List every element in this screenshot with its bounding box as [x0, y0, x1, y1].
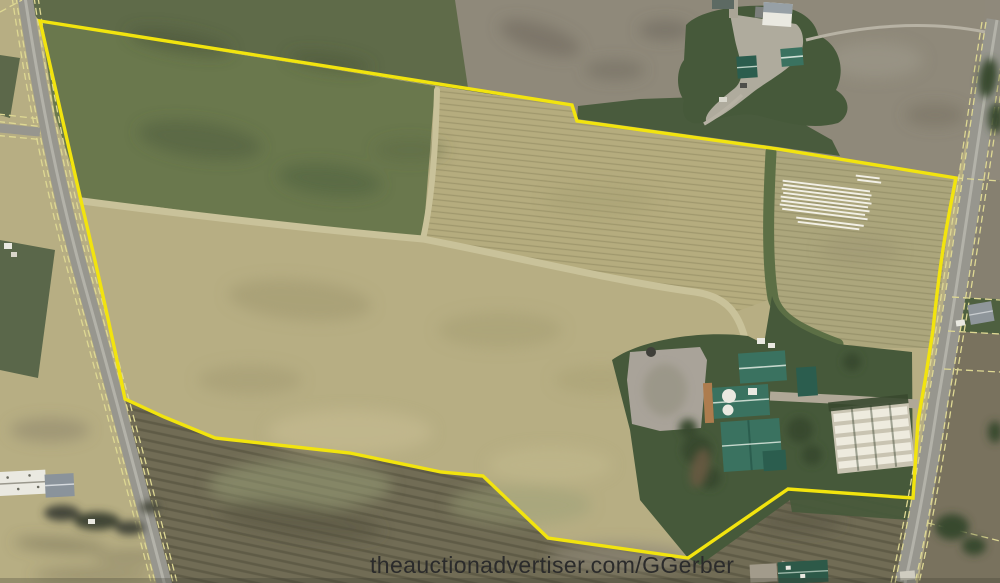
farmhouse-garage — [755, 6, 764, 18]
barn-long — [720, 418, 786, 474]
branch-road-surface — [0, 128, 40, 132]
silo-tank-2 — [723, 405, 734, 416]
white-bin-3 — [768, 343, 775, 348]
small-structure — [719, 97, 727, 102]
shed-in-trees — [88, 519, 95, 524]
east-gray-building — [967, 301, 994, 325]
east-white-object — [956, 319, 966, 326]
gravel-lot-shading — [643, 364, 687, 416]
shed-west — [736, 55, 757, 78]
watermark-url: theauctionadvertiser.com/GGerber — [370, 552, 734, 579]
outbuilding-roof-partial — [712, 0, 734, 9]
barn-middle — [712, 384, 770, 419]
silo-tank-1 — [722, 389, 736, 403]
barn-north — [738, 350, 787, 383]
dark-tank — [646, 347, 656, 357]
feedlot — [828, 394, 915, 474]
farmhouse-roof — [763, 2, 793, 14]
barn-long-extension — [762, 450, 786, 472]
white-bin-2 — [757, 338, 765, 344]
white-bin-1 — [748, 388, 757, 395]
barn-small-east — [796, 366, 818, 396]
barn-small-east-roof — [796, 366, 818, 396]
aerial-map-canvas — [0, 0, 1000, 583]
shed-east — [780, 47, 803, 67]
left-structure-1 — [4, 243, 12, 249]
aerial-photo: theauctionadvertiser.com/GGerber — [0, 0, 1000, 583]
vehicle — [740, 83, 747, 88]
left-structure-2 — [11, 252, 17, 257]
